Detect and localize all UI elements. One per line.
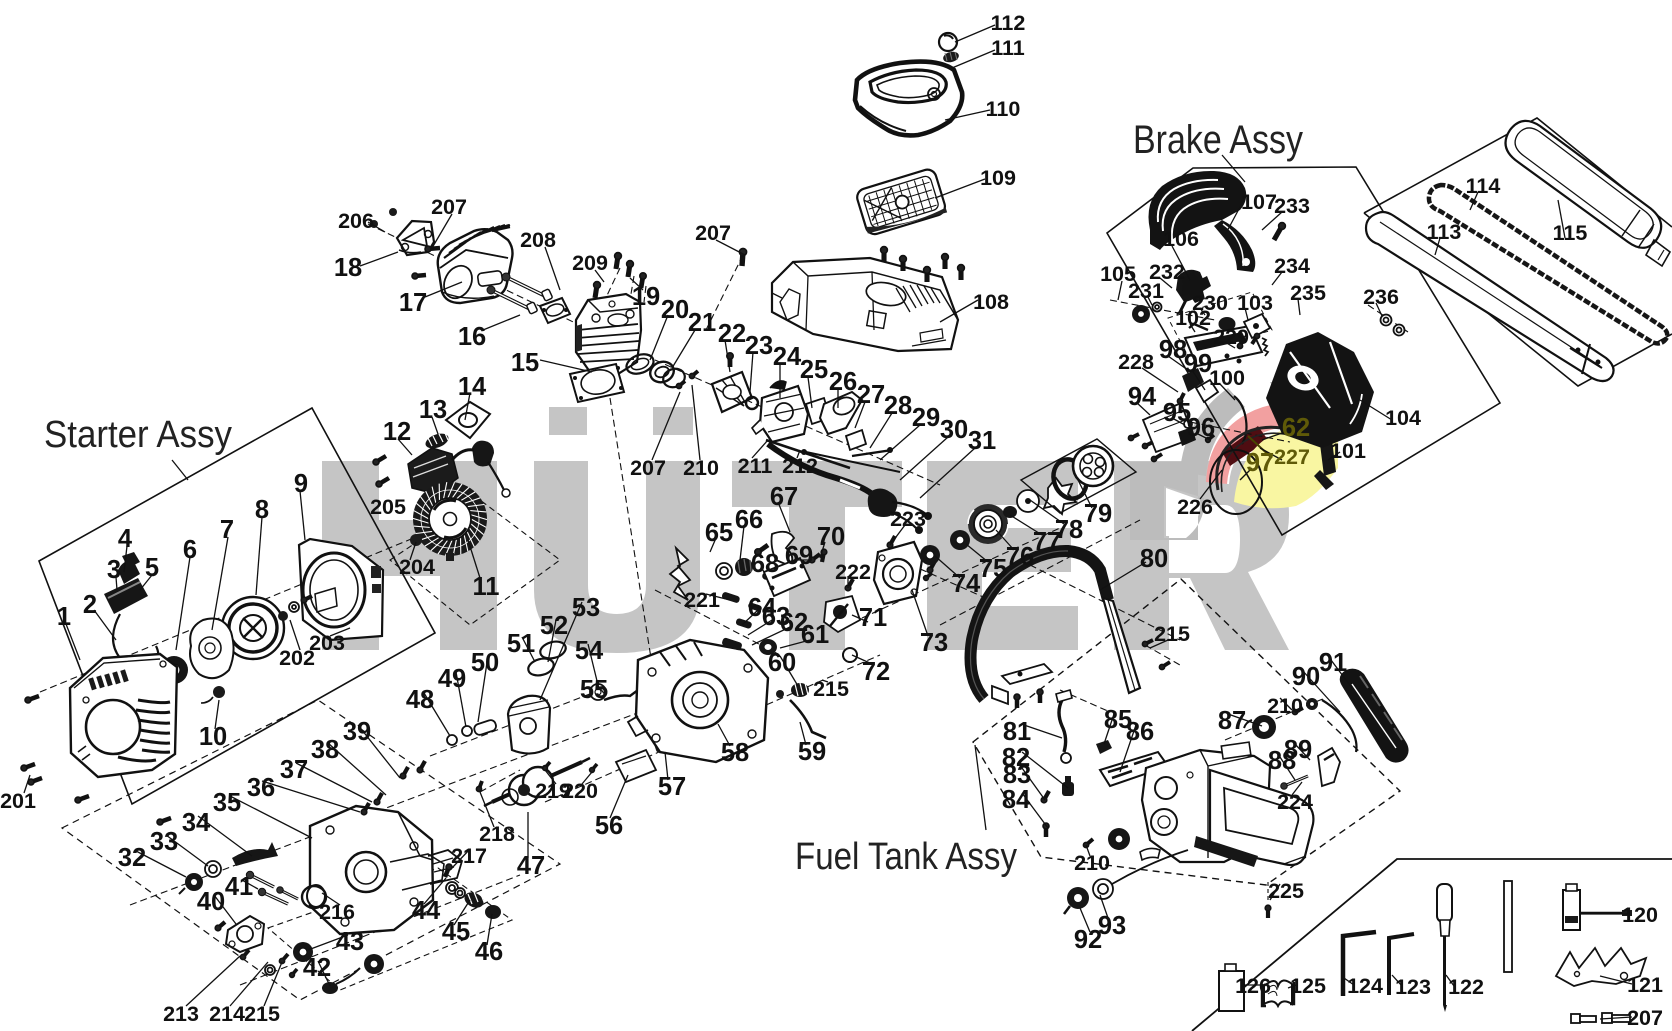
svg-text:43: 43 bbox=[336, 928, 364, 956]
svg-text:120: 120 bbox=[1622, 903, 1658, 927]
svg-text:35: 35 bbox=[213, 789, 241, 817]
svg-text:215: 215 bbox=[1154, 622, 1190, 646]
svg-text:103: 103 bbox=[1237, 291, 1273, 315]
svg-text:206: 206 bbox=[338, 209, 374, 233]
svg-text:223: 223 bbox=[890, 507, 926, 531]
svg-text:74: 74 bbox=[952, 570, 981, 598]
svg-text:93: 93 bbox=[1098, 912, 1126, 940]
svg-text:203: 203 bbox=[309, 631, 345, 655]
svg-text:229: 229 bbox=[1213, 325, 1249, 349]
svg-text:210: 210 bbox=[1267, 694, 1303, 718]
svg-text:Brake Assy: Brake Assy bbox=[1133, 118, 1303, 162]
svg-text:52: 52 bbox=[540, 612, 568, 640]
svg-text:39: 39 bbox=[343, 718, 371, 746]
svg-text:3: 3 bbox=[107, 556, 121, 584]
svg-text:17: 17 bbox=[399, 289, 427, 317]
svg-text:94: 94 bbox=[1128, 383, 1157, 411]
svg-text:37: 37 bbox=[280, 756, 308, 784]
svg-text:41: 41 bbox=[225, 873, 253, 901]
svg-text:2: 2 bbox=[83, 591, 97, 619]
svg-text:48: 48 bbox=[406, 686, 434, 714]
svg-text:32: 32 bbox=[118, 844, 146, 872]
svg-text:124: 124 bbox=[1347, 974, 1383, 998]
svg-text:19: 19 bbox=[632, 283, 660, 311]
svg-text:55: 55 bbox=[580, 676, 608, 704]
svg-text:58: 58 bbox=[721, 739, 749, 767]
svg-text:25: 25 bbox=[800, 356, 828, 384]
svg-text:106: 106 bbox=[1163, 227, 1199, 251]
svg-text:113: 113 bbox=[1427, 220, 1462, 244]
svg-text:108: 108 bbox=[973, 290, 1009, 314]
svg-text:50: 50 bbox=[471, 649, 499, 677]
svg-text:80: 80 bbox=[1140, 545, 1168, 573]
svg-text:91: 91 bbox=[1319, 649, 1347, 677]
svg-text:90: 90 bbox=[1292, 663, 1320, 691]
svg-text:107: 107 bbox=[1241, 190, 1277, 214]
svg-text:89: 89 bbox=[1284, 736, 1312, 764]
svg-text:73: 73 bbox=[920, 629, 948, 657]
svg-text:104: 104 bbox=[1385, 406, 1421, 430]
svg-text:201: 201 bbox=[0, 789, 36, 813]
svg-text:207: 207 bbox=[695, 221, 731, 245]
svg-text:1: 1 bbox=[57, 603, 71, 631]
svg-text:72: 72 bbox=[862, 658, 890, 686]
svg-text:215: 215 bbox=[813, 677, 849, 701]
svg-text:29: 29 bbox=[912, 404, 940, 432]
svg-text:4: 4 bbox=[118, 525, 133, 553]
svg-text:5: 5 bbox=[145, 554, 159, 582]
svg-text:54: 54 bbox=[575, 637, 604, 665]
svg-text:227: 227 bbox=[1274, 445, 1310, 469]
svg-text:225: 225 bbox=[1268, 879, 1304, 903]
svg-text:23: 23 bbox=[745, 332, 773, 360]
svg-text:28: 28 bbox=[884, 392, 912, 420]
svg-text:115: 115 bbox=[1553, 221, 1588, 245]
svg-text:18: 18 bbox=[334, 254, 362, 282]
svg-text:211: 211 bbox=[738, 454, 773, 478]
svg-text:222: 222 bbox=[835, 560, 871, 584]
svg-text:208: 208 bbox=[520, 228, 556, 252]
svg-text:9: 9 bbox=[294, 470, 308, 498]
svg-text:207: 207 bbox=[431, 195, 467, 219]
svg-text:49: 49 bbox=[438, 665, 466, 693]
svg-text:22: 22 bbox=[718, 320, 746, 348]
svg-text:112: 112 bbox=[991, 11, 1026, 35]
svg-text:69: 69 bbox=[785, 542, 813, 570]
svg-text:16: 16 bbox=[458, 323, 486, 351]
svg-text:68: 68 bbox=[751, 550, 779, 578]
svg-text:61: 61 bbox=[801, 621, 829, 649]
svg-text:66: 66 bbox=[735, 506, 763, 534]
svg-text:75: 75 bbox=[979, 555, 1007, 583]
svg-text:84: 84 bbox=[1002, 786, 1031, 814]
svg-text:53: 53 bbox=[572, 594, 600, 622]
svg-text:6: 6 bbox=[183, 536, 197, 564]
svg-text:71: 71 bbox=[859, 604, 887, 632]
svg-text:213: 213 bbox=[163, 1002, 199, 1026]
svg-text:228: 228 bbox=[1118, 350, 1154, 374]
svg-text:65: 65 bbox=[705, 519, 733, 547]
svg-text:109: 109 bbox=[980, 166, 1016, 190]
svg-text:26: 26 bbox=[829, 368, 857, 396]
svg-text:110: 110 bbox=[986, 97, 1021, 121]
svg-text:204: 204 bbox=[399, 555, 435, 579]
svg-text:24: 24 bbox=[773, 343, 802, 371]
svg-text:224: 224 bbox=[1277, 790, 1313, 814]
svg-text:45: 45 bbox=[442, 918, 470, 946]
svg-text:10: 10 bbox=[199, 723, 227, 751]
svg-text:20: 20 bbox=[661, 296, 689, 324]
svg-text:216: 216 bbox=[319, 900, 355, 924]
svg-text:76: 76 bbox=[1006, 543, 1034, 571]
svg-text:46: 46 bbox=[475, 938, 503, 966]
svg-text:218: 218 bbox=[479, 822, 515, 846]
svg-text:11: 11 bbox=[473, 573, 500, 601]
svg-text:87: 87 bbox=[1218, 707, 1246, 735]
svg-text:122: 122 bbox=[1448, 975, 1484, 999]
svg-text:7: 7 bbox=[220, 516, 234, 544]
svg-text:125: 125 bbox=[1290, 974, 1326, 998]
svg-text:236: 236 bbox=[1363, 285, 1399, 309]
svg-text:86: 86 bbox=[1126, 718, 1154, 746]
svg-text:56: 56 bbox=[595, 812, 623, 840]
svg-text:Starter Assy: Starter Assy bbox=[44, 414, 232, 456]
svg-text:27: 27 bbox=[857, 381, 885, 409]
svg-text:33: 33 bbox=[150, 828, 178, 856]
svg-text:78: 78 bbox=[1055, 516, 1083, 544]
svg-text:226: 226 bbox=[1177, 495, 1213, 519]
svg-text:14: 14 bbox=[458, 373, 487, 401]
svg-text:42: 42 bbox=[303, 954, 331, 982]
svg-text:99: 99 bbox=[1184, 350, 1212, 378]
svg-text:21: 21 bbox=[688, 309, 716, 337]
svg-text:233: 233 bbox=[1274, 194, 1310, 218]
svg-text:97: 97 bbox=[1246, 449, 1274, 477]
svg-text:13: 13 bbox=[419, 396, 447, 424]
svg-text:34: 34 bbox=[182, 809, 211, 837]
svg-text:121: 121 bbox=[1627, 973, 1663, 997]
svg-text:111: 111 bbox=[991, 36, 1025, 60]
svg-text:102: 102 bbox=[1175, 306, 1211, 330]
svg-text:210: 210 bbox=[1074, 851, 1110, 875]
svg-text:231: 231 bbox=[1128, 279, 1164, 303]
svg-text:8: 8 bbox=[255, 496, 269, 524]
svg-text:205: 205 bbox=[370, 495, 406, 519]
svg-text:38: 38 bbox=[311, 736, 339, 764]
svg-text:47: 47 bbox=[517, 852, 545, 880]
svg-text:235: 235 bbox=[1290, 281, 1326, 305]
svg-text:Fuel Tank Assy: Fuel Tank Assy bbox=[795, 836, 1017, 878]
svg-text:217: 217 bbox=[451, 844, 487, 868]
svg-text:126: 126 bbox=[1235, 974, 1271, 998]
svg-text:123: 123 bbox=[1395, 975, 1431, 999]
svg-text:51: 51 bbox=[507, 630, 535, 658]
svg-text:215: 215 bbox=[244, 1002, 280, 1026]
svg-text:212: 212 bbox=[782, 454, 818, 478]
svg-text:101: 101 bbox=[1330, 439, 1366, 463]
svg-text:36: 36 bbox=[247, 774, 275, 802]
svg-text:57: 57 bbox=[658, 773, 686, 801]
svg-text:62: 62 bbox=[1282, 414, 1310, 442]
svg-text:83: 83 bbox=[1003, 761, 1031, 789]
svg-text:210: 210 bbox=[683, 456, 719, 480]
svg-text:40: 40 bbox=[197, 888, 225, 916]
svg-text:207: 207 bbox=[630, 456, 666, 480]
svg-text:59: 59 bbox=[798, 738, 826, 766]
svg-text:30: 30 bbox=[940, 416, 968, 444]
svg-text:214: 214 bbox=[209, 1002, 245, 1026]
svg-text:67: 67 bbox=[770, 483, 798, 511]
svg-text:12: 12 bbox=[383, 418, 411, 446]
svg-text:234: 234 bbox=[1274, 254, 1310, 278]
svg-text:15: 15 bbox=[511, 349, 539, 377]
svg-text:114: 114 bbox=[1466, 174, 1501, 198]
svg-text:79: 79 bbox=[1084, 500, 1112, 528]
svg-text:207: 207 bbox=[1627, 1006, 1663, 1030]
svg-text:221: 221 bbox=[684, 588, 720, 612]
svg-text:220: 220 bbox=[562, 779, 598, 803]
svg-text:31: 31 bbox=[968, 427, 996, 455]
svg-text:81: 81 bbox=[1003, 718, 1031, 746]
svg-text:60: 60 bbox=[768, 649, 796, 677]
svg-text:100: 100 bbox=[1209, 366, 1245, 390]
svg-text:96: 96 bbox=[1187, 414, 1215, 442]
svg-text:70: 70 bbox=[817, 523, 845, 551]
svg-text:209: 209 bbox=[572, 251, 608, 275]
svg-text:44: 44 bbox=[412, 897, 441, 925]
